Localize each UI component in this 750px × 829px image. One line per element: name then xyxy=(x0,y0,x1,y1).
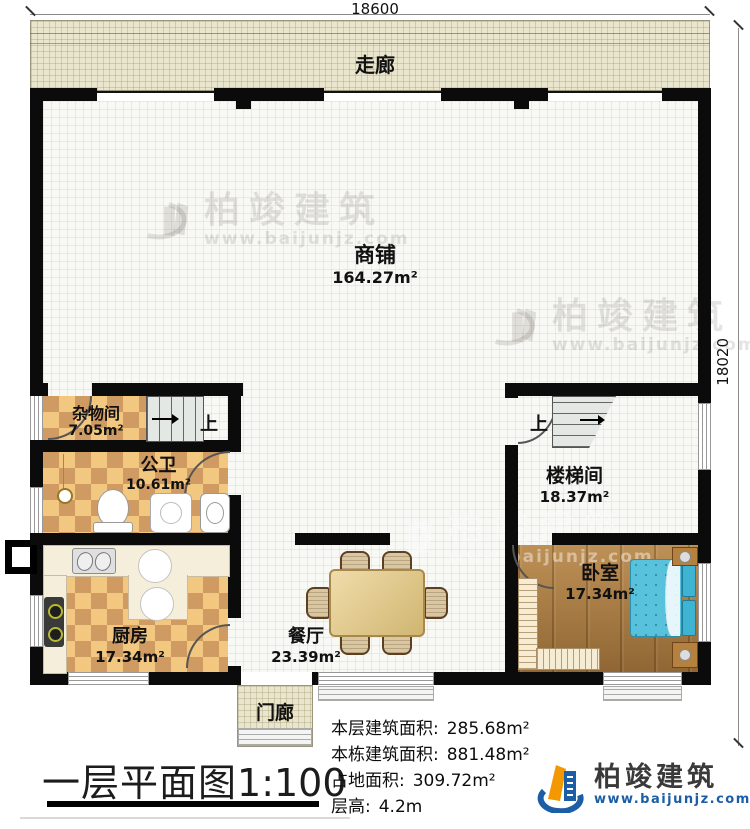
room-area: 17.34m² xyxy=(545,585,655,603)
wall xyxy=(92,383,243,396)
room-area: 17.34m² xyxy=(76,648,184,666)
room-label-storage: 杂物间 7.05m² xyxy=(46,404,146,440)
storefront-glass xyxy=(548,91,662,93)
room-name: 商铺 xyxy=(270,243,480,268)
wall xyxy=(30,533,241,545)
wardrobe xyxy=(518,578,538,670)
cooktop-plate xyxy=(138,549,172,583)
room-area: 23.39m² xyxy=(256,648,356,666)
sink-basin xyxy=(93,550,113,572)
drawing-title: 一层平面图 1:100 xyxy=(42,752,347,807)
stair-up-label: 上 xyxy=(200,410,218,436)
dimension-top-value: 18600 xyxy=(300,0,450,18)
room-label-corridor: 走廊 xyxy=(325,53,425,77)
stat-label: 占地面积: xyxy=(331,771,405,791)
room-name: 厨房 xyxy=(76,626,184,648)
room-label-stairwell: 楼梯间 18.37m² xyxy=(512,465,637,506)
nightstand xyxy=(672,547,698,566)
cooktop-plate xyxy=(140,587,174,621)
wall xyxy=(505,383,710,396)
wall xyxy=(147,672,240,685)
wall xyxy=(30,383,48,396)
column-stub xyxy=(514,101,529,109)
chair xyxy=(424,587,448,619)
light-cord xyxy=(63,454,64,492)
window xyxy=(30,487,43,539)
stats-block: 本层建筑面积:285.68m² 本栋建筑面积:881.48m² 占地面积:309… xyxy=(331,716,530,820)
window xyxy=(698,563,711,642)
wall xyxy=(505,383,518,398)
exterior-steps xyxy=(318,686,434,701)
stove xyxy=(44,597,64,647)
column-stub xyxy=(236,101,251,109)
corridor-line xyxy=(30,43,710,44)
room-area: 164.27m² xyxy=(270,268,480,287)
wall xyxy=(552,533,710,545)
window xyxy=(68,672,149,685)
floor-plan: 18600 18020 走廊 柏竣建筑 www.baijunjz.com xyxy=(0,0,750,829)
wall xyxy=(505,533,516,545)
washing-machine xyxy=(150,493,192,533)
stat-value: 881.48m² xyxy=(447,745,530,765)
pendant-light xyxy=(57,488,73,504)
burner xyxy=(48,604,63,619)
kitchen-sink xyxy=(72,548,116,574)
stat-line: 占地面积:309.72m² xyxy=(331,768,530,794)
title-underline xyxy=(47,801,319,807)
room-label-dining: 餐厅 23.39m² xyxy=(256,626,356,666)
window xyxy=(698,403,711,470)
porch-steps xyxy=(238,728,312,746)
storefront-glass xyxy=(97,91,214,93)
stat-line: 本栋建筑面积:881.48m² xyxy=(331,742,530,768)
brand-text: 柏竣建筑 www.baijunjz.com xyxy=(594,763,750,808)
pillow xyxy=(682,600,696,636)
room-name: 餐厅 xyxy=(256,626,356,648)
stat-label: 本层建筑面积: xyxy=(331,719,439,739)
wall xyxy=(214,88,324,101)
brand-website: www.baijunjz.com xyxy=(594,792,750,807)
window xyxy=(603,672,682,685)
room-label-porch: 门廊 xyxy=(240,702,310,725)
washer-drum xyxy=(160,502,182,524)
dimension-right-value: 18020 xyxy=(714,338,732,386)
room-name: 楼梯间 xyxy=(512,465,637,488)
room-name: 公卫 xyxy=(106,455,211,477)
room-area: 7.05m² xyxy=(46,423,146,440)
room-name: 走廊 xyxy=(325,53,425,77)
up-arrow-icon xyxy=(152,418,176,420)
room-label-bathroom: 公卫 10.61m² xyxy=(106,455,211,493)
stat-line: 层高:4.2m xyxy=(331,794,530,820)
room-label-bedroom: 卧室 17.34m² xyxy=(545,562,655,603)
room-name: 门廊 xyxy=(240,702,310,725)
stat-line: 本层建筑面积:285.68m² xyxy=(331,716,530,742)
window xyxy=(30,595,43,647)
bathroom-sink xyxy=(200,493,230,533)
stat-value: 309.72m² xyxy=(413,771,496,791)
toilet-tank xyxy=(93,522,133,533)
sink-basin xyxy=(206,502,224,524)
stat-label: 本栋建筑面积: xyxy=(331,745,439,765)
stair-up-label: 上 xyxy=(530,410,548,436)
brand-logo-icon xyxy=(536,757,586,813)
stat-label: 层高: xyxy=(331,797,371,817)
brand-logo: 柏竣建筑 www.baijunjz.com xyxy=(536,757,750,813)
room-label-kitchen: 厨房 17.34m² xyxy=(76,626,184,666)
room-name: 杂物间 xyxy=(46,404,146,423)
wall xyxy=(295,533,390,545)
chair xyxy=(306,587,330,619)
room-label-shop: 商铺 164.27m² xyxy=(270,243,480,287)
flue-column xyxy=(5,540,37,574)
sink-basin xyxy=(75,550,95,572)
storefront-glass xyxy=(324,91,441,93)
window xyxy=(318,672,434,685)
room-name: 卧室 xyxy=(545,562,655,585)
dimension-line-right xyxy=(738,28,739,746)
corridor-line xyxy=(30,33,710,34)
drawing-title-text: 一层平面图 xyxy=(42,752,237,807)
brand-name: 柏竣建筑 xyxy=(594,763,718,793)
burner xyxy=(48,627,63,642)
bed-sheet xyxy=(665,560,680,636)
divider-line xyxy=(20,817,350,819)
room-area: 10.61m² xyxy=(106,477,211,494)
stat-value: 4.2m xyxy=(379,797,423,817)
stat-value: 285.68m² xyxy=(447,719,530,739)
up-arrow-icon xyxy=(580,419,602,421)
room-area: 18.37m² xyxy=(512,488,637,506)
wall xyxy=(228,666,241,685)
pillow xyxy=(682,561,696,597)
lamp xyxy=(679,649,691,661)
lamp xyxy=(679,551,691,563)
exterior-steps xyxy=(603,686,682,701)
wardrobe-hatch xyxy=(519,579,537,669)
wall xyxy=(30,440,241,452)
wardrobe-hatch xyxy=(537,649,599,669)
wall xyxy=(680,672,710,685)
nightstand xyxy=(672,642,698,668)
wardrobe xyxy=(536,648,600,670)
wall xyxy=(441,88,548,101)
